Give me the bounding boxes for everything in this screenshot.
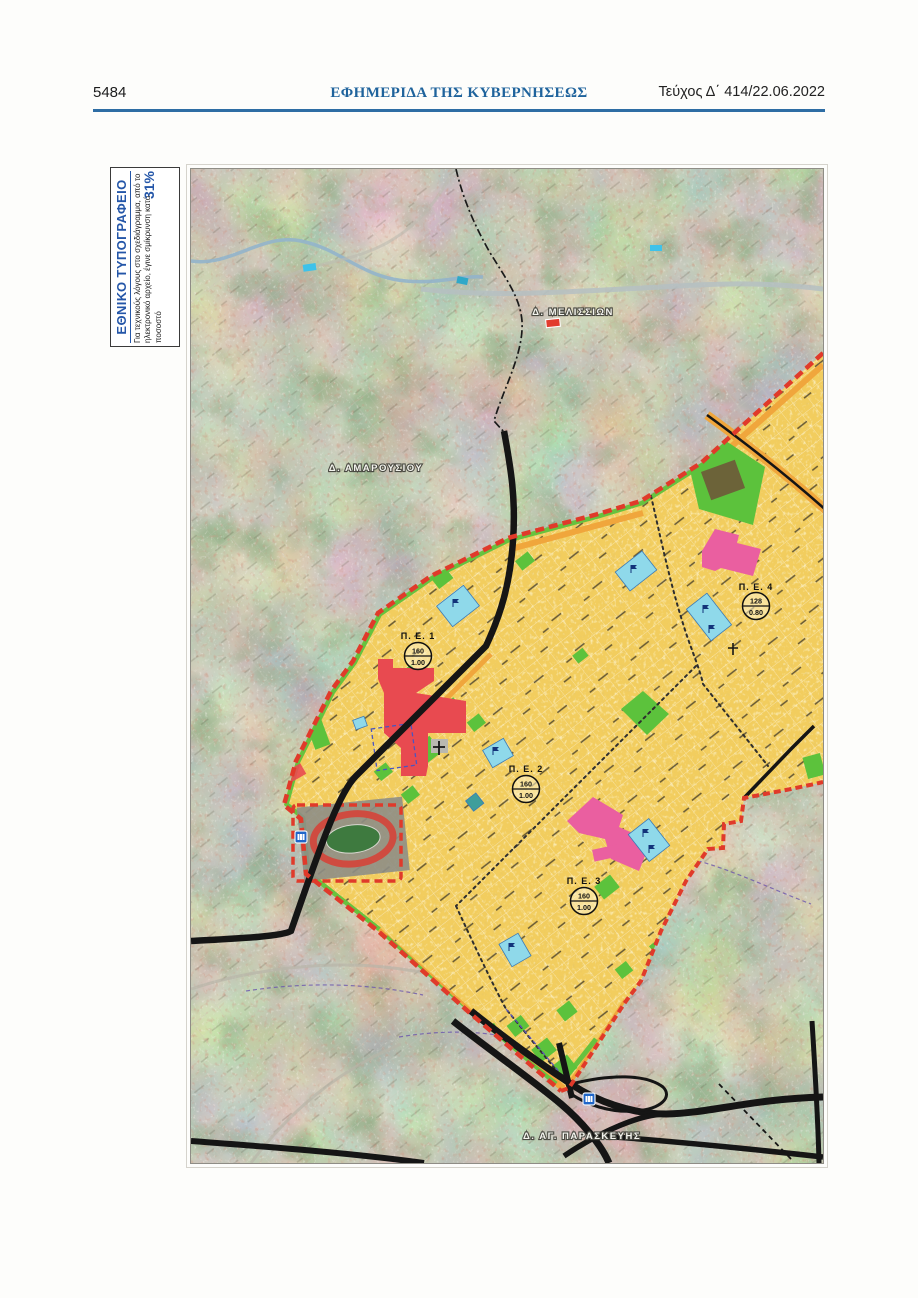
- issue-info: Τεύχος Δ΄ 414/22.06.2022: [659, 84, 826, 100]
- svg-text:1.00: 1.00: [577, 903, 591, 912]
- svg-text:128: 128: [750, 597, 762, 606]
- gazette-page: 5484 ΕΦΗΜΕΡΙΔΑ ΤΗΣ ΚΥΒΕΡΝΗΣΕΩΣ Τεύχος Δ΄…: [0, 0, 918, 1298]
- printing-office-stamp: ΕΘΝΙΚΟ ΤΥΠΟΓΡΑΦΕΙΟ Για τεχνικούς λόγους …: [110, 167, 180, 347]
- stamp-org-title: ΕΘΝΙΚΟ ΤΥΠΟΓΡΑΦΕΙΟ: [114, 171, 131, 343]
- stamp-reduction-percent: 31%: [141, 171, 157, 343]
- municipality-label-melission: Δ. ΜΕΛΙΣΣΙΩΝ: [532, 307, 614, 318]
- svg-text:1.00: 1.00: [411, 658, 425, 667]
- municipality-label-amarousiou: Δ. ΑΜΑΡΟΥΣΙΟΥ: [329, 463, 424, 474]
- map-svg: Δ. ΜΕΛΙΣΣΙΩΝ Δ. ΑΜΑΡΟΥΣΙΟΥ Δ. ΑΓ. ΠΑΡΑΣΚ…: [191, 169, 823, 1163]
- urban-plan-map: Δ. ΜΕΛΙΣΣΙΩΝ Δ. ΑΜΑΡΟΥΣΙΟΥ Δ. ΑΓ. ΠΑΡΑΣΚ…: [190, 168, 824, 1164]
- header-rule: [93, 109, 825, 112]
- svg-text:Π. Ε. 1: Π. Ε. 1: [401, 631, 436, 641]
- svg-text:Π. Ε. 2: Π. Ε. 2: [509, 764, 544, 774]
- svg-text:0.80: 0.80: [749, 608, 763, 617]
- svg-text:Π. Ε. 4: Π. Ε. 4: [739, 582, 774, 592]
- metro-station-icon: [295, 831, 307, 843]
- svg-text:160: 160: [578, 892, 590, 901]
- svg-text:160: 160: [520, 780, 532, 789]
- building-marker: [546, 318, 561, 327]
- svg-text:Π. Ε. 3: Π. Ε. 3: [567, 876, 602, 886]
- svg-text:160: 160: [412, 647, 424, 656]
- metro-station-icon: [583, 1093, 595, 1105]
- stamp-rotated-content: ΕΘΝΙΚΟ ΤΥΠΟΓΡΑΦΕΙΟ Για τεχνικούς λόγους …: [114, 171, 176, 343]
- svg-text:1.00: 1.00: [519, 791, 533, 800]
- municipality-label-agparaskevis: Δ. ΑΓ. ΠΑΡΑΣΚΕΥΗΣ: [523, 1131, 641, 1142]
